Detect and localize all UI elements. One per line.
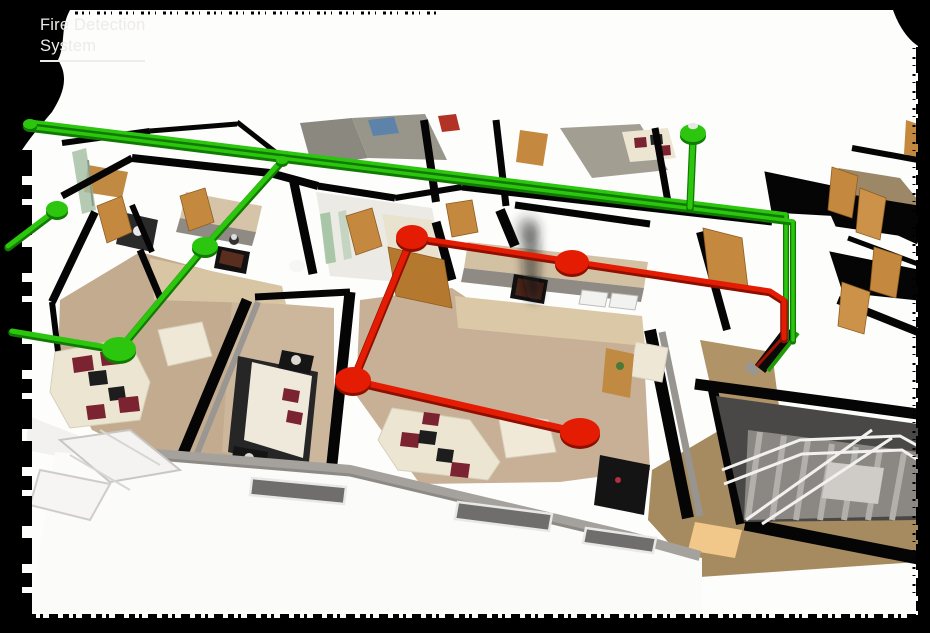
wood-cabinet <box>602 348 634 398</box>
cable-drop-upper-room <box>690 138 693 207</box>
blue-sofa <box>368 117 399 136</box>
wood-door <box>516 130 548 166</box>
toilet <box>289 260 305 272</box>
stair-landing <box>822 462 884 504</box>
detector-node <box>46 201 68 217</box>
detector-node <box>335 367 371 393</box>
sink-unit <box>609 293 638 310</box>
junction-node <box>276 156 288 164</box>
detector-node <box>192 237 218 255</box>
cream-sofa <box>622 128 676 162</box>
wood-door <box>904 120 918 158</box>
scanned-page: Fire Detection System <box>0 0 930 633</box>
cable-endcap-node <box>23 119 37 129</box>
floorplan-render <box>0 0 930 633</box>
detector-node <box>102 337 136 361</box>
detector-node <box>396 225 428 249</box>
tv-unit <box>594 455 650 515</box>
plant <box>616 362 624 370</box>
lamp <box>291 355 301 365</box>
detector-node <box>560 418 600 446</box>
sink-unit <box>579 290 608 307</box>
armchair <box>630 342 668 382</box>
detector-node <box>688 123 698 129</box>
detector-node <box>555 250 589 274</box>
